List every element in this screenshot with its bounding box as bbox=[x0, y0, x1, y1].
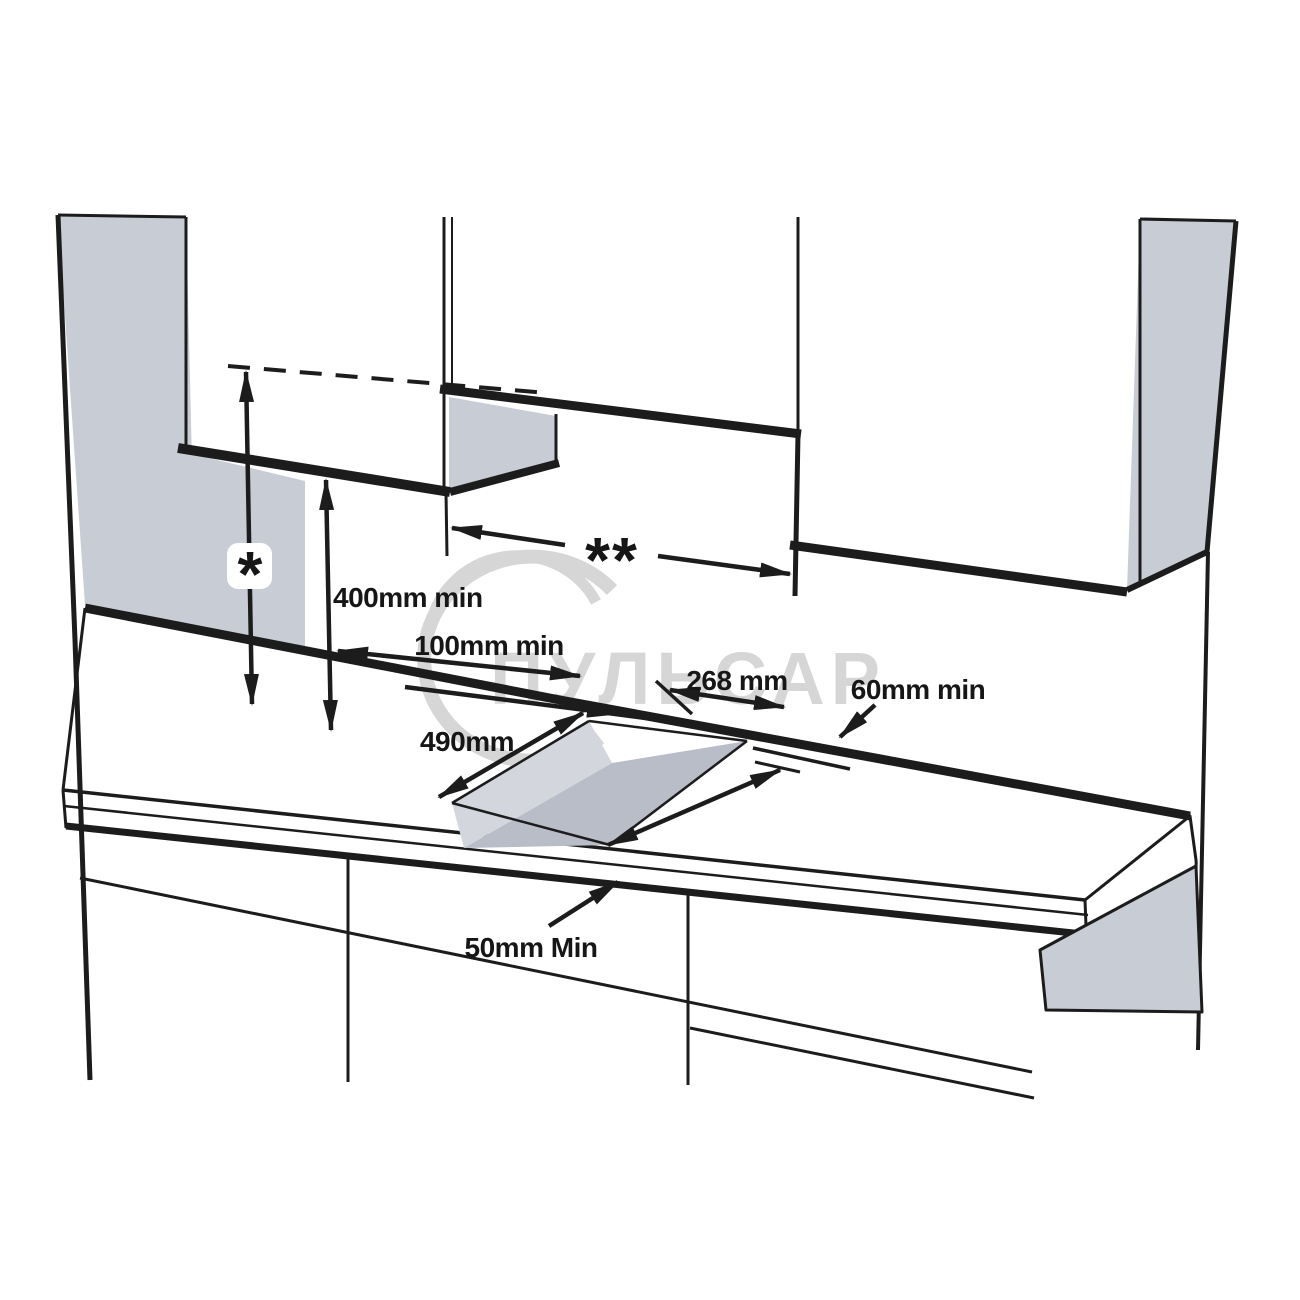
middle-cabinet-extension-line bbox=[795, 434, 798, 596]
right-cabinet-bottom-edge bbox=[790, 545, 1127, 592]
dimension-double-star-gap: ** bbox=[446, 492, 790, 596]
label-100mm-min: 100mm min bbox=[414, 630, 564, 661]
right-panel-top-edge bbox=[1140, 219, 1236, 221]
countertop-front-left-cap bbox=[63, 790, 66, 828]
label-400mm-min: 400mm min bbox=[333, 582, 483, 613]
base-door-top-rail bbox=[80, 878, 1032, 1072]
label-60mm-min: 60mm min bbox=[851, 674, 986, 705]
kitchen-installation-diagram: ПУЛЬСАР bbox=[0, 0, 1300, 1300]
diagram-canvas: ПУЛЬСАР bbox=[0, 0, 1300, 1300]
left-wall-panel bbox=[58, 215, 196, 625]
double-star-symbol: ** bbox=[585, 524, 639, 596]
dimension-50mm-min: 50mm Min bbox=[465, 882, 618, 963]
left-wall-top-edge bbox=[58, 215, 186, 217]
star-symbol: * bbox=[238, 538, 263, 610]
label-50mm-min: 50mm Min bbox=[465, 932, 598, 963]
label-490mm: 490mm bbox=[420, 726, 514, 757]
double-star-extension-line bbox=[446, 492, 447, 556]
cabinet-underside-dashed-line bbox=[228, 366, 547, 393]
label-268mm: 268 mm bbox=[686, 665, 787, 696]
